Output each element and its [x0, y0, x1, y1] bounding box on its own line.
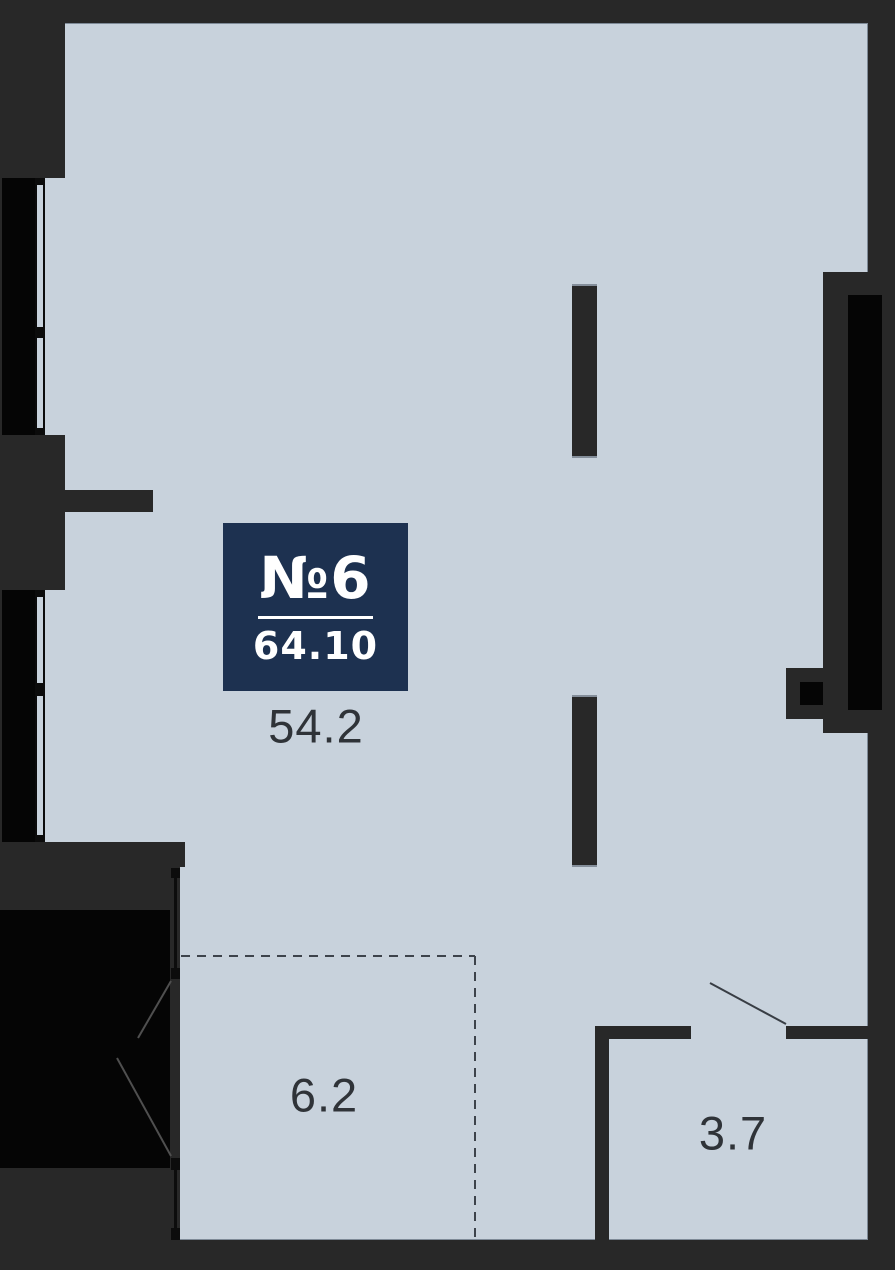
main-room-area-label: 54.2	[268, 699, 363, 754]
window-frame-tick	[35, 683, 45, 696]
badge-divider	[258, 616, 373, 619]
balcony-door-frame-block	[171, 968, 180, 979]
balcony-door-glass-line	[174, 878, 177, 968]
window-frame-tick	[35, 835, 45, 842]
wall-top-left-block	[35, 23, 65, 178]
wall-bathroom-top-left	[595, 1026, 691, 1039]
window-frame-tick	[35, 327, 45, 338]
right-wall-shaft	[848, 295, 882, 710]
floor-plan: №6 64.10 54.2 6.2 3.7	[0, 0, 895, 1270]
wall-band-bottom-left	[35, 842, 185, 867]
bathroom-area-label: 3.7	[699, 1106, 767, 1161]
wall-bathroom-top-right	[786, 1026, 868, 1039]
balcony-door-glass-line	[174, 1170, 177, 1228]
wall-bathroom-vertical	[595, 1026, 609, 1240]
balcony-door-frame-block	[171, 1158, 180, 1170]
unit-badge[interactable]: №6 64.10	[223, 523, 408, 691]
wall-stub-left	[65, 490, 153, 512]
unit-number-label: №6	[259, 549, 371, 607]
balcony-exterior-block	[0, 910, 170, 1168]
kitchen-zone-area-label: 6.2	[290, 1068, 358, 1123]
window-top-frame	[35, 178, 45, 435]
window-top-sill	[2, 178, 35, 435]
window-bottom-sill	[2, 590, 35, 842]
wall-partition-upper	[572, 284, 597, 458]
window-bottom-frame	[35, 590, 45, 842]
window-frame-tick	[35, 178, 45, 185]
wall-between-windows	[35, 435, 65, 590]
wall-partition-lower	[572, 695, 597, 867]
balcony-door-frame-block	[171, 1228, 180, 1240]
window-frame-tick	[35, 428, 45, 435]
ventilation-shaft	[800, 682, 823, 705]
balcony-door-frame-block	[171, 868, 180, 878]
unit-total-area: 64.10	[253, 627, 378, 665]
window-frame-tick	[35, 590, 45, 597]
